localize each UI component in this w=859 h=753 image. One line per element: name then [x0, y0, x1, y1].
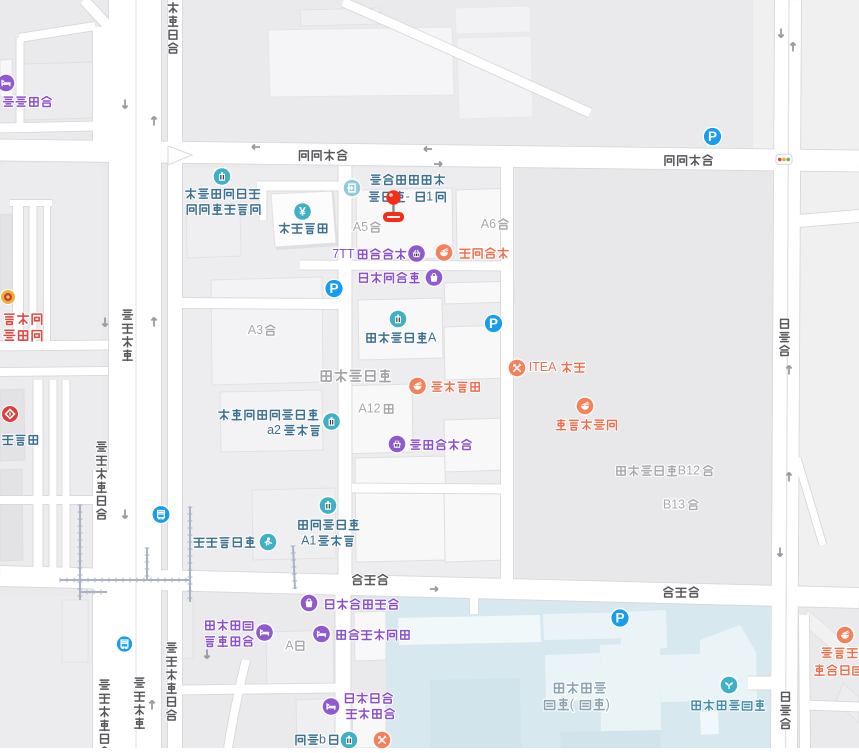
- svg-text:B13: B13: [663, 497, 685, 511]
- svg-text:A3: A3: [248, 323, 263, 337]
- svg-text:1: 1: [426, 189, 433, 203]
- svg-text:a2: a2: [267, 423, 281, 437]
- svg-text:P: P: [489, 316, 498, 331]
- svg-text:): ): [605, 696, 609, 711]
- svg-text:¥: ¥: [299, 205, 306, 219]
- svg-text:A6: A6: [481, 217, 496, 231]
- svg-text:A: A: [428, 330, 437, 344]
- svg-text:A12: A12: [358, 401, 380, 415]
- svg-text:B12: B12: [678, 463, 700, 477]
- svg-text:7TT: 7TT: [332, 247, 355, 261]
- svg-text:(: (: [570, 696, 575, 711]
- svg-text:-: -: [406, 189, 410, 203]
- svg-text:A: A: [285, 638, 294, 652]
- svg-text:P: P: [615, 611, 624, 626]
- svg-text:P: P: [329, 281, 338, 296]
- svg-text:P: P: [708, 129, 717, 144]
- svg-text:A5: A5: [353, 220, 368, 234]
- svg-text:b: b: [319, 732, 326, 746]
- svg-text:ITEA: ITEA: [529, 360, 557, 374]
- svg-text:A1: A1: [301, 533, 316, 547]
